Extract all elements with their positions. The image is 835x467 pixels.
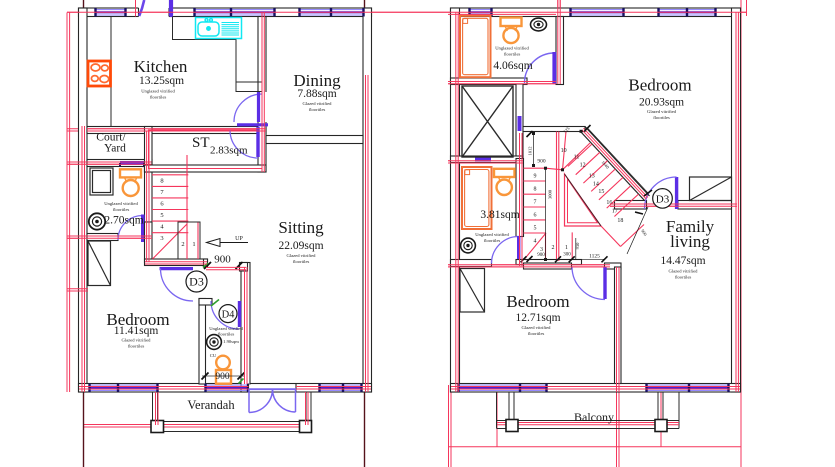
svg-text:3.81sqm: 3.81sqm — [480, 209, 519, 221]
svg-text:14.47sqm: 14.47sqm — [660, 255, 705, 267]
svg-text:3: 3 — [160, 235, 163, 242]
svg-text:Glazed vitrified: Glazed vitrified — [522, 325, 552, 330]
svg-text:6: 6 — [534, 213, 537, 219]
svg-text:4: 4 — [534, 239, 537, 245]
svg-text:900: 900 — [537, 253, 545, 258]
svg-text:18: 18 — [617, 218, 623, 224]
svg-text:16: 16 — [606, 200, 612, 206]
svg-text:10: 10 — [561, 148, 567, 154]
svg-text:900: 900 — [537, 159, 546, 165]
svg-text:22.09sqm: 22.09sqm — [278, 240, 323, 252]
svg-text:Yard: Yard — [104, 143, 126, 155]
svg-text:12: 12 — [580, 163, 586, 169]
svg-text:floortiles: floortiles — [128, 344, 145, 349]
svg-text:Balcony: Balcony — [574, 410, 614, 424]
svg-text:Sitting: Sitting — [278, 218, 324, 237]
svg-text:floortiles: floortiles — [675, 275, 692, 280]
svg-text:Unglazed vitrified: Unglazed vitrified — [141, 89, 175, 94]
svg-text:floortiles: floortiles — [218, 332, 235, 337]
svg-text:Glazed vitrified: Glazed vitrified — [303, 101, 333, 106]
svg-text:Unglazed vitrified: Unglazed vitrified — [495, 46, 529, 51]
svg-text:D3: D3 — [656, 193, 670, 205]
svg-text:floortiles: floortiles — [484, 238, 501, 243]
svg-text:14: 14 — [593, 182, 599, 188]
svg-text:7.88sqm: 7.88sqm — [297, 88, 336, 100]
svg-text:Glazed vitrified: Glazed vitrified — [287, 253, 317, 258]
svg-text:Kitchen: Kitchen — [134, 57, 188, 76]
svg-text:Unglazed vitrified: Unglazed vitrified — [104, 201, 138, 206]
svg-text:1: 1 — [565, 245, 568, 251]
svg-text:8: 8 — [160, 178, 163, 185]
svg-text:floortiles: floortiles — [293, 259, 310, 264]
svg-text:5: 5 — [160, 212, 163, 219]
svg-text:ST: ST — [192, 135, 210, 151]
svg-text:D4: D4 — [222, 309, 236, 320]
svg-text:Verandah: Verandah — [187, 398, 235, 412]
svg-text:Glazed vitrified: Glazed vitrified — [122, 338, 152, 343]
svg-text:floortiles: floortiles — [504, 52, 521, 57]
svg-text:9: 9 — [534, 174, 537, 180]
svg-text:floortiles: floortiles — [150, 95, 167, 100]
svg-text:7: 7 — [534, 200, 537, 206]
svg-text:1125: 1125 — [589, 254, 600, 260]
svg-text:2: 2 — [181, 241, 184, 248]
svg-text:20.93sqm: 20.93sqm — [639, 97, 684, 109]
svg-text:floortiles: floortiles — [309, 107, 326, 112]
svg-text:2: 2 — [552, 245, 555, 251]
svg-text:15: 15 — [598, 189, 604, 195]
svg-text:floortiles: floortiles — [113, 207, 130, 212]
svg-text:1: 1 — [192, 241, 195, 248]
svg-text:900: 900 — [215, 372, 230, 382]
svg-text:11: 11 — [574, 155, 580, 161]
svg-text:floortiles: floortiles — [528, 331, 545, 336]
svg-text:UP: UP — [235, 236, 243, 242]
svg-text:2.70sqm: 2.70sqm — [104, 215, 143, 227]
svg-text:D3: D3 — [189, 275, 204, 289]
svg-text:300: 300 — [563, 253, 571, 258]
svg-text:11.41sqm: 11.41sqm — [114, 325, 159, 337]
svg-text:Glazed vitrified: Glazed vitrified — [669, 269, 699, 274]
svg-text:Bedroom: Bedroom — [506, 292, 569, 311]
svg-text:13: 13 — [589, 174, 595, 180]
svg-text:4.06sqm: 4.06sqm — [493, 60, 532, 72]
svg-text:930: 930 — [575, 242, 580, 250]
svg-text:13.25sqm: 13.25sqm — [139, 75, 184, 87]
svg-text:5: 5 — [534, 226, 537, 232]
svg-text:12.71sqm: 12.71sqm — [515, 312, 560, 324]
svg-text:2.83sqm: 2.83sqm — [210, 145, 248, 157]
svg-text:living: living — [670, 232, 710, 251]
svg-text:Unglazed vitrified: Unglazed vitrified — [209, 326, 243, 331]
svg-text:1.90sqm: 1.90sqm — [223, 339, 239, 344]
svg-text:Unglazed vitrified: Unglazed vitrified — [475, 232, 509, 237]
svg-text:900: 900 — [214, 254, 231, 266]
svg-text:3000: 3000 — [548, 189, 553, 199]
svg-text:floortiles: floortiles — [653, 115, 670, 120]
svg-text:8: 8 — [534, 187, 537, 193]
svg-text:CU: CU — [210, 353, 217, 358]
svg-text:1812: 1812 — [528, 147, 533, 156]
svg-text:17: 17 — [612, 208, 618, 214]
svg-text:Glazed vitrified: Glazed vitrified — [647, 109, 677, 114]
svg-text:Bedroom: Bedroom — [628, 76, 691, 95]
